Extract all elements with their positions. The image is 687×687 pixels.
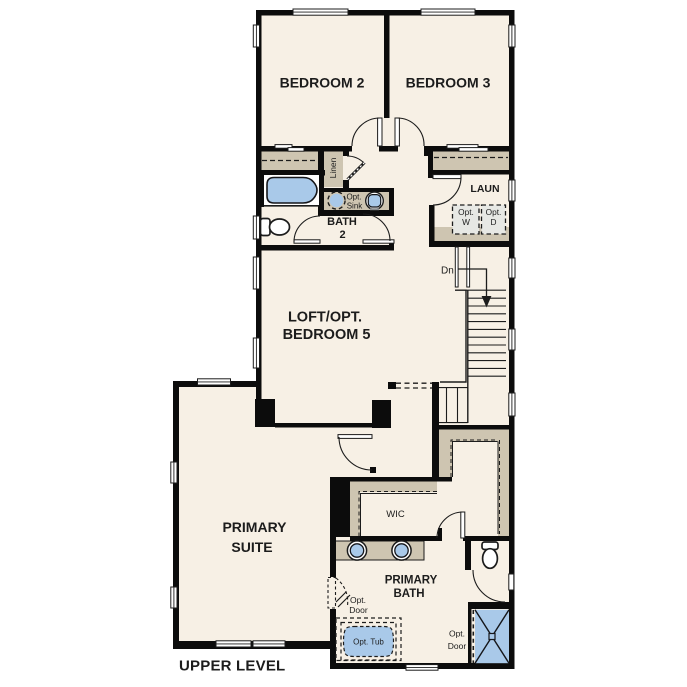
svg-text:Sink: Sink	[347, 202, 364, 211]
svg-text:D: D	[491, 217, 497, 227]
svg-text:Opt. Tub: Opt. Tub	[353, 637, 384, 646]
svg-text:BEDROOM 2: BEDROOM 2	[280, 75, 365, 91]
svg-text:Dn: Dn	[441, 266, 454, 277]
svg-text:Opt.: Opt.	[350, 595, 366, 605]
svg-text:PRIMARY: PRIMARY	[222, 519, 287, 535]
svg-text:Opt.: Opt.	[486, 207, 502, 217]
svg-text:Door: Door	[349, 605, 368, 615]
svg-text:SUITE: SUITE	[231, 539, 272, 555]
svg-text:W: W	[462, 217, 470, 227]
svg-text:BATH: BATH	[393, 588, 424, 600]
svg-text:Opt.: Opt.	[449, 629, 465, 639]
svg-text:WIC: WIC	[386, 509, 405, 520]
svg-text:BATH: BATH	[327, 216, 357, 228]
svg-text:Opt.: Opt.	[458, 207, 474, 217]
svg-text:Linen: Linen	[328, 157, 338, 178]
svg-text:UPPER LEVEL: UPPER LEVEL	[179, 658, 285, 675]
svg-text:Door: Door	[448, 641, 467, 651]
svg-text:LOFT/OPT.: LOFT/OPT.	[288, 310, 362, 326]
svg-text:2: 2	[339, 229, 345, 241]
svg-text:PRIMARY: PRIMARY	[385, 575, 438, 587]
svg-text:LAUN: LAUN	[470, 183, 499, 195]
svg-text:BEDROOM 3: BEDROOM 3	[406, 75, 491, 91]
svg-text:Opt.: Opt.	[346, 193, 361, 202]
svg-text:BEDROOM 5: BEDROOM 5	[283, 327, 371, 343]
